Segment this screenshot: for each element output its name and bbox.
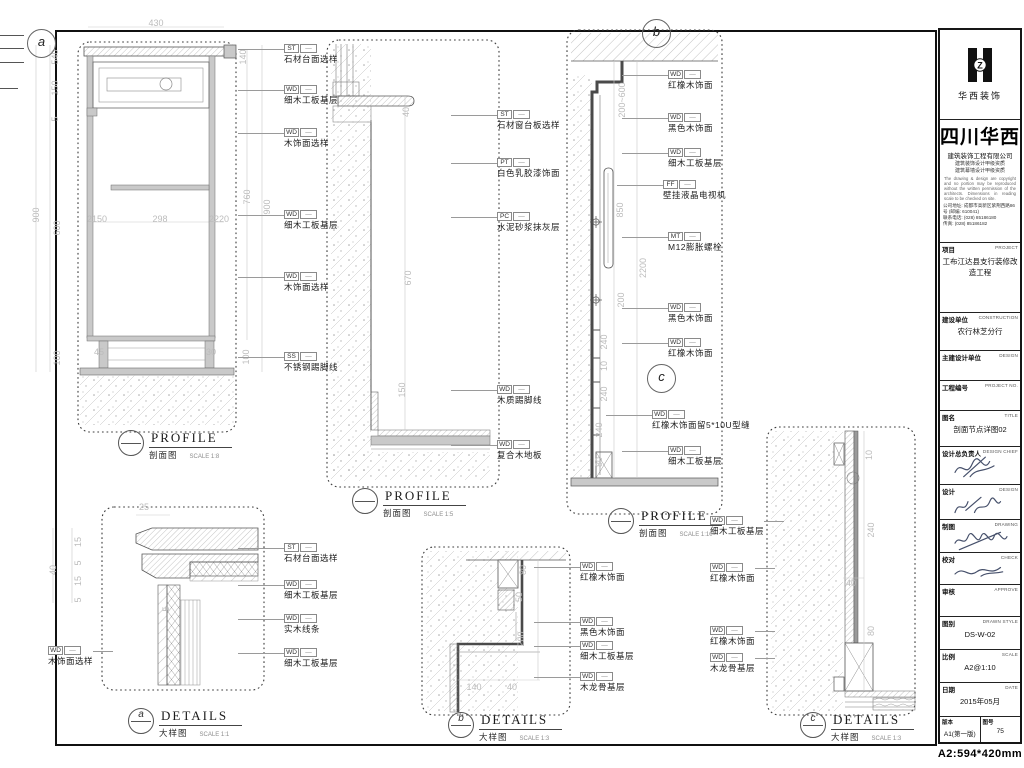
material-callout: PC—水泥砂浆抹灰层 xyxy=(497,212,560,232)
dimension-label: 900 xyxy=(31,207,41,222)
dimension-label: 40 xyxy=(507,682,517,692)
dimension-label: 140 xyxy=(238,49,248,64)
material-callout: SS—不锈钢踢脚线 xyxy=(284,352,338,372)
drawing-title: PROFILE剖面图SCALE 1:5 xyxy=(352,488,466,519)
dimension-label: 200~600 xyxy=(617,82,627,117)
company-logo-icon: Z xyxy=(960,46,1000,86)
dimension-label: 15 xyxy=(73,576,83,586)
material-callout: ST—石材台面选样 xyxy=(284,44,338,64)
drawing-title: cDETAILS大样图SCALE 1:3 xyxy=(800,712,914,743)
material-callout: WD—木饰面选样 xyxy=(284,128,329,148)
dimension-label: 5 xyxy=(161,606,171,611)
company-qualification: 建筑幕墙设计甲级资质 xyxy=(940,167,1020,174)
registration-mark xyxy=(0,48,24,49)
dimension-label: 150 xyxy=(50,80,60,95)
section-bubble-a: a xyxy=(27,29,56,58)
material-callout: WD—红橡木饰面 xyxy=(710,563,755,583)
signature xyxy=(946,561,1016,585)
material-callout: WD—细木工板基层 xyxy=(668,148,722,168)
drawing-title: PROFILE剖面图SCALE 1:8 xyxy=(118,430,232,461)
material-callout: WD—红橡木饰面 xyxy=(668,338,713,358)
dimension-label: 40 xyxy=(846,578,856,588)
material-callout: WD—木龙骨基层 xyxy=(580,672,625,692)
material-callout: PT—白色乳胶漆饰面 xyxy=(497,158,560,178)
dimension-label: 30 xyxy=(206,347,216,357)
dimension-label: 50 xyxy=(514,592,524,602)
material-callout: WD—复合木地板 xyxy=(497,440,542,460)
material-callout: WD—红橡木饰面 xyxy=(580,562,625,582)
dimension-label: 240 xyxy=(599,334,609,349)
material-callout: WD—红橡木饰面 xyxy=(668,70,713,90)
material-callout: ST—石材台面选样 xyxy=(284,543,338,563)
company-qualification: 建筑装饰设计甲级资质 xyxy=(940,160,1020,167)
material-callout: WD—细木工板基层 xyxy=(284,648,338,668)
dimension-label: 240 xyxy=(866,522,876,537)
titleblock-row: 图名TITLE剖面节点详图02 xyxy=(940,411,1020,447)
dimension-label: 150 xyxy=(397,382,407,397)
titleblock-row: 日期DATE2015年05月 xyxy=(940,683,1020,716)
titleblock-row: 图别DRAWN STYLEDS-W-02 xyxy=(940,617,1020,650)
registration-mark xyxy=(0,62,24,63)
signature xyxy=(946,493,1016,519)
titleblock-row: 设计DESIGN xyxy=(940,485,1020,520)
titleblock-footer: 版本 A1(第一版) 图号 75 xyxy=(940,716,1020,742)
version-cell: 版本 A1(第一版) xyxy=(940,717,981,742)
paper-size-note: A2:594*420mm xyxy=(936,748,1024,760)
titleblock-rows: 项目PROJECT工布江达县支行装修改造工程建设单位CONSTRUCTION农行… xyxy=(940,243,1020,716)
material-callout: WD—红橡木饰面 xyxy=(710,626,755,646)
material-callout: FF—壁挂液晶电视机 xyxy=(663,180,726,200)
logo-caption: 华西装饰 xyxy=(958,89,1002,102)
material-callout: ST—石材窗台板选样 xyxy=(497,110,560,130)
dimension-label: 45 xyxy=(94,347,104,357)
signature xyxy=(946,528,1016,553)
material-callout: WD—细木工板基层 xyxy=(284,210,338,230)
dimension-label: 430 xyxy=(148,18,163,28)
title-block: Z 华西装饰 四川华西 建筑装饰工程有限公司 建筑装饰设计甲级资质 建筑幕墙设计… xyxy=(938,28,1022,744)
titleblock-row: 制图DRAWING xyxy=(940,520,1020,553)
material-callout: WD—细木工板基层 xyxy=(580,641,634,661)
material-callout: WD—黑色木饰面 xyxy=(668,303,713,323)
copyright-notice: The drawing & design are copyright and n… xyxy=(940,174,1020,201)
dimension-label: 200 xyxy=(516,631,526,646)
material-callout: MT—M12膨胀螺栓 xyxy=(668,232,722,252)
dimension-label: 900 xyxy=(262,199,272,214)
sheet-number-cell: 图号 75 xyxy=(981,717,1021,742)
dimension-label: 5 xyxy=(73,560,83,565)
drawing-title: aDETAILS大样图SCALE 1:1 xyxy=(128,708,242,739)
titleblock-row: 比例SCALEA2@1:10 xyxy=(940,650,1020,683)
dimension-label: 15 xyxy=(73,537,83,547)
material-callout: WD—黑色木饰面 xyxy=(580,617,625,637)
dimension-label: 5 xyxy=(73,597,83,602)
company-subname: 建筑装饰工程有限公司 xyxy=(940,150,1020,160)
material-callout: WD—木饰面选样 xyxy=(48,646,93,666)
dimension-label: 2220 xyxy=(209,214,229,224)
dimension-label: 10 xyxy=(864,450,874,460)
registration-mark xyxy=(0,88,18,89)
dimension-label: 850 xyxy=(615,202,625,217)
dimension-label: 40 xyxy=(48,565,58,575)
dimension-label: 600 xyxy=(52,220,62,235)
dimension-label: 298 xyxy=(152,214,167,224)
dimension-label: 140 xyxy=(466,682,481,692)
titleblock-row: 校对CHECK xyxy=(940,553,1020,585)
drawing-title: PROFILE剖面图SCALE 1:10 xyxy=(608,508,722,539)
company-name: 四川华西 xyxy=(940,122,1020,149)
dimension-label: 25 xyxy=(139,502,149,512)
titleblock-row: 项目PROJECT工布江达县支行装修改造工程 xyxy=(940,243,1020,313)
dimension-label: 760 xyxy=(242,189,252,204)
titleblock-row: 工程编号PROJECT NO. xyxy=(940,381,1020,411)
material-callout: WD—细木工板基层 xyxy=(284,580,338,600)
company-logo-box: Z 华西装饰 xyxy=(940,30,1020,120)
material-callout: WD—实木线条 xyxy=(284,614,320,634)
dimension-label: 240 xyxy=(594,422,604,437)
company-info: 四川华西 建筑装饰工程有限公司 建筑装饰设计甲级资质 建筑幕墙设计甲级资质 Th… xyxy=(940,120,1020,243)
dimension-label: 100 xyxy=(52,350,62,365)
dimension-label: 40 xyxy=(401,107,411,117)
dimension-label: 670 xyxy=(403,270,413,285)
drawing-title: bDETAILS大样图SCALE 1:3 xyxy=(448,712,562,743)
dimension-label: 80 xyxy=(866,626,876,636)
dimension-label: 240 xyxy=(599,386,609,401)
company-contacts: 公司地址: 成都市高新区紫荆西路86号 (邮编: 610041) 联系电话: (… xyxy=(940,201,1020,227)
registration-mark xyxy=(0,35,24,36)
material-callout: WD—黑色木饰面 xyxy=(668,113,713,133)
signature xyxy=(946,455,1016,481)
material-callout: WD—红橡木饰面留5*10U型缝 xyxy=(652,410,750,430)
dimension-label: 80 xyxy=(594,457,604,467)
titleblock-row: 建设单位CONSTRUCTION农行林芝分行 xyxy=(940,313,1020,351)
material-callout: WD—木龙骨基层 xyxy=(710,653,755,673)
dimension-label: 5 xyxy=(50,116,60,121)
drawing-sheet: ST—石材台面选样WD—细木工板基层WD—木饰面选样WD—细木工板基层WD—木饰… xyxy=(0,0,1024,768)
dimension-label: 2200 xyxy=(638,258,648,278)
material-callout: WD—细木工板基层 xyxy=(668,446,722,466)
sheet-frame xyxy=(55,30,937,746)
material-callout: WD—木质踢脚线 xyxy=(497,385,542,405)
dimension-label: 10 xyxy=(599,361,609,371)
section-bubble-b: b xyxy=(642,19,671,48)
titleblock-row: 审核APPROVE xyxy=(940,585,1020,617)
titleblock-row: 设计总负责人DESIGN CHIEF xyxy=(940,447,1020,485)
material-callout: WD—木饰面选样 xyxy=(284,272,329,292)
material-callout: WD—细木工板基层 xyxy=(284,85,338,105)
titleblock-row: 主建设计单位DESIGN xyxy=(940,351,1020,381)
dimension-label: 2150 xyxy=(87,214,107,224)
section-bubble-c: c xyxy=(647,364,676,393)
dimension-label: 80 xyxy=(518,565,528,575)
svg-text:Z: Z xyxy=(977,61,983,71)
dimension-label: 200 xyxy=(616,292,626,307)
